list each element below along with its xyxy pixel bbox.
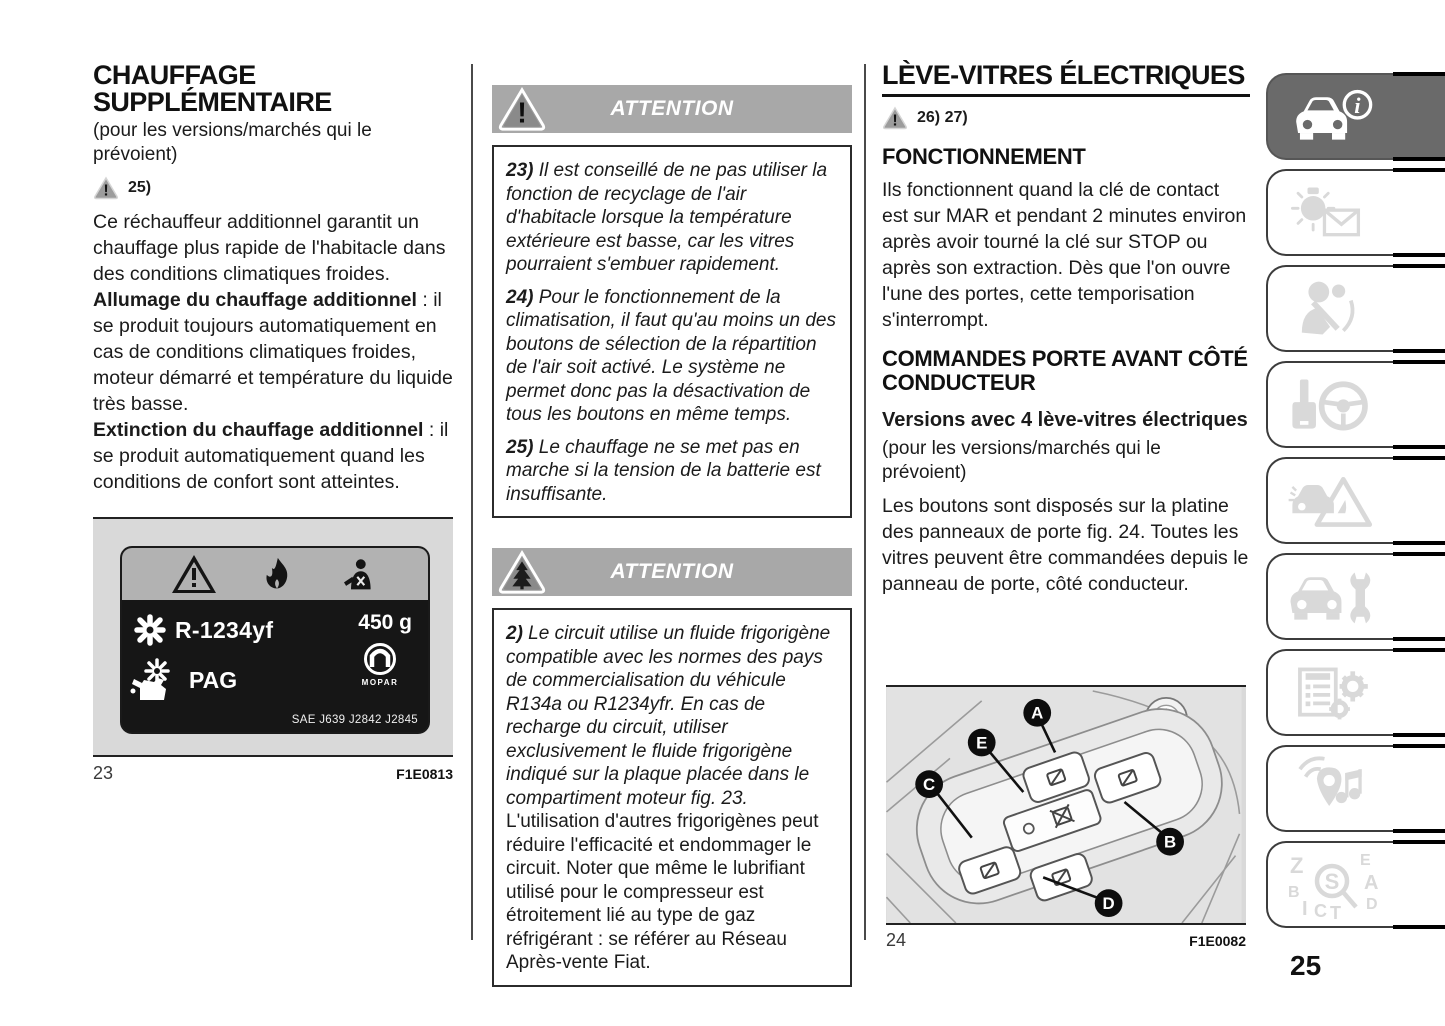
label-body: R-1234yf 450 g PAG xyxy=(122,602,428,732)
svg-text:T: T xyxy=(1330,903,1341,921)
attention-header-environment: ATTENTION xyxy=(492,548,852,596)
warning-text: Pour le fonctionnement de la climatisati… xyxy=(506,287,836,426)
bold-lead: Extinction du chauffage additionnel xyxy=(93,419,423,441)
paragraph: Ils fonctionnent quand la clé de contact… xyxy=(882,177,1250,333)
technician-icon xyxy=(337,553,379,595)
svg-text:!: ! xyxy=(517,97,527,129)
section-title-leve-vitres: LÈVE-VITRES ÉLECTRIQUES xyxy=(882,62,1250,89)
marker-e: E xyxy=(976,733,987,752)
svg-text:D: D xyxy=(1366,896,1378,913)
svg-text:B: B xyxy=(1288,884,1300,901)
warning-ref-row: ! 26) 27) xyxy=(882,105,1250,131)
alphabetical-index-icon: Z E B A I C T D S xyxy=(1282,849,1392,921)
figure-24-caption: 24 F1E0082 xyxy=(886,930,1246,951)
warning-triangle-icon: ! xyxy=(93,176,119,200)
versions-note: (pour les versions/marchés qui le prévoi… xyxy=(93,119,453,167)
paragraph: Allumage du chauffage additionnel : il s… xyxy=(93,287,453,417)
svg-text:I: I xyxy=(1302,898,1308,920)
figure-23-caption: 23 F1E0813 xyxy=(93,763,453,784)
svg-text:!: ! xyxy=(892,113,897,130)
svg-text:E: E xyxy=(1360,852,1371,869)
tab-technical-data[interactable] xyxy=(1266,649,1445,736)
tab-emergency[interactable] xyxy=(1266,457,1445,544)
warning-refs: 26) 27) xyxy=(917,109,968,127)
svg-text:MOPAR: MOPAR xyxy=(362,678,399,687)
door-panel-illustration: A B C D E xyxy=(886,687,1242,923)
car-info-icon: i xyxy=(1282,84,1382,150)
flammable-icon xyxy=(260,554,294,594)
warning-text: Le chauffage ne se met pas en marche si … xyxy=(506,437,821,505)
refrigerant-quantity: 450 g xyxy=(358,611,412,635)
refrigerant-label: R-1234yf 450 g PAG xyxy=(120,546,430,734)
column-divider xyxy=(864,64,866,940)
section-tab-bar: i xyxy=(1266,73,1445,928)
svg-text:!: ! xyxy=(103,183,108,200)
warning-number: 2) xyxy=(506,623,523,644)
technical-data-icon xyxy=(1282,660,1382,726)
warning-text-italic: Le circuit utilise un fluide frigorigène… xyxy=(506,623,830,809)
warning-triangle-icon: ! xyxy=(882,106,908,130)
marker-c: C xyxy=(923,775,935,794)
warning-triangle-icon xyxy=(171,554,217,594)
warning-ref: 25) xyxy=(128,179,151,197)
maintenance-icon xyxy=(1282,564,1382,630)
warning-text: Il est conseillé de ne pas utiliser la f… xyxy=(506,160,827,275)
warning-item: 23) Il est conseillé de ne pas utiliser … xyxy=(506,159,838,277)
warning-box-2: 2) Le circuit utilise un fluide frigorig… xyxy=(492,608,852,987)
figure-number: 24 xyxy=(886,930,906,951)
oil-row: PAG xyxy=(130,658,237,702)
subsection-title: COMMANDES PORTE AVANT CÔTÉ CONDUCTEUR xyxy=(882,347,1250,395)
multimedia-icon xyxy=(1282,756,1382,822)
tab-starting-driving[interactable] xyxy=(1266,361,1445,448)
refrigerant-row: R-1234yf xyxy=(134,614,273,646)
middle-column: ! ATTENTION 23) Il est conseillé de ne p… xyxy=(492,85,852,987)
figure-code: F1E0813 xyxy=(396,766,453,782)
attention-title: ATTENTION xyxy=(610,97,733,121)
attention-title: ATTENTION xyxy=(610,560,733,584)
warning-ref-row: ! 25) xyxy=(93,175,453,201)
safety-icon xyxy=(1282,276,1382,342)
tab-alphabetical-index[interactable]: Z E B A I C T D S xyxy=(1266,841,1445,928)
warning-text-regular: L'utilisation d'autres frigorigènes peut… xyxy=(506,810,838,975)
warning-item: 24) Pour le fonctionnement de la climati… xyxy=(506,286,838,427)
starting-driving-icon xyxy=(1282,372,1382,438)
figure-24-door-panel: A B C D E xyxy=(886,685,1246,925)
marker-a: A xyxy=(1031,704,1043,723)
marker-b: B xyxy=(1164,833,1176,852)
svg-text:Z: Z xyxy=(1290,853,1303,878)
figure-number: 23 xyxy=(93,763,113,784)
subsection-title: FONCTIONNEMENT xyxy=(882,145,1250,169)
bold-lead: Allumage du chauffage additionnel xyxy=(93,289,417,311)
bold-subheading: Versions avec 4 lève-vitres électriques xyxy=(882,407,1250,434)
oil-can-icon xyxy=(130,658,182,702)
tab-safety[interactable] xyxy=(1266,265,1445,352)
svg-text:S: S xyxy=(1325,869,1340,894)
left-column: CHAUFFAGE SUPPLÉMENTAIRE (pour les versi… xyxy=(93,62,453,495)
mopar-logo: MOPAR xyxy=(358,642,402,699)
column-divider xyxy=(471,64,473,940)
tab-vehicle-info[interactable]: i xyxy=(1266,73,1445,160)
versions-note: (pour les versions/marchés qui le prévoi… xyxy=(882,437,1250,485)
marker-d: D xyxy=(1103,894,1115,913)
environment-triangle-icon xyxy=(497,549,547,595)
refrigerant-snowflake-icon xyxy=(134,614,166,646)
svg-text:A: A xyxy=(1364,872,1378,894)
manual-page: CHAUFFAGE SUPPLÉMENTAIRE (pour les versi… xyxy=(0,0,1445,1026)
warning-triangle-icon: ! xyxy=(497,86,547,132)
label-hazard-band xyxy=(122,548,428,602)
title-rule xyxy=(882,94,1250,97)
tab-multimedia[interactable] xyxy=(1266,745,1445,832)
figure-23-refrigerant-label: R-1234yf 450 g PAG xyxy=(93,517,453,757)
oil-type: PAG xyxy=(189,667,237,694)
warning-number: 25) xyxy=(506,437,533,458)
paragraph: Ce réchauffeur additionnel garantit un c… xyxy=(93,209,453,287)
warning-number: 24) xyxy=(506,287,533,308)
page-number: 25 xyxy=(1290,950,1321,982)
warning-item: 2) Le circuit utilise un fluide frigorig… xyxy=(506,622,838,975)
paragraph: Extinction du chauffage additionnel : il… xyxy=(93,417,453,495)
section-title-chauffage: CHAUFFAGE SUPPLÉMENTAIRE xyxy=(93,62,453,116)
right-column: LÈVE-VITRES ÉLECTRIQUES ! 26) 27) FONCTI… xyxy=(882,62,1250,597)
figure-code: F1E0082 xyxy=(1189,933,1246,949)
warning-box-1: 23) Il est conseillé de ne pas utiliser … xyxy=(492,145,852,518)
tab-warning-lights-messages[interactable] xyxy=(1266,169,1445,256)
svg-text:C: C xyxy=(1314,901,1327,921)
refrigerant-type: R-1234yf xyxy=(175,617,273,644)
paragraph: Les boutons sont disposés sur la platine… xyxy=(882,493,1250,597)
sae-standards: SAE J639 J2842 J2845 xyxy=(292,714,418,726)
svg-text:i: i xyxy=(1354,93,1361,118)
warning-item: 25) Le chauffage ne se met pas en marche… xyxy=(506,436,838,507)
tab-maintenance[interactable] xyxy=(1266,553,1445,640)
attention-header: ! ATTENTION xyxy=(492,85,852,133)
warning-lights-messages-icon xyxy=(1282,180,1382,246)
emergency-icon xyxy=(1282,468,1382,534)
warning-number: 23) xyxy=(506,160,533,181)
